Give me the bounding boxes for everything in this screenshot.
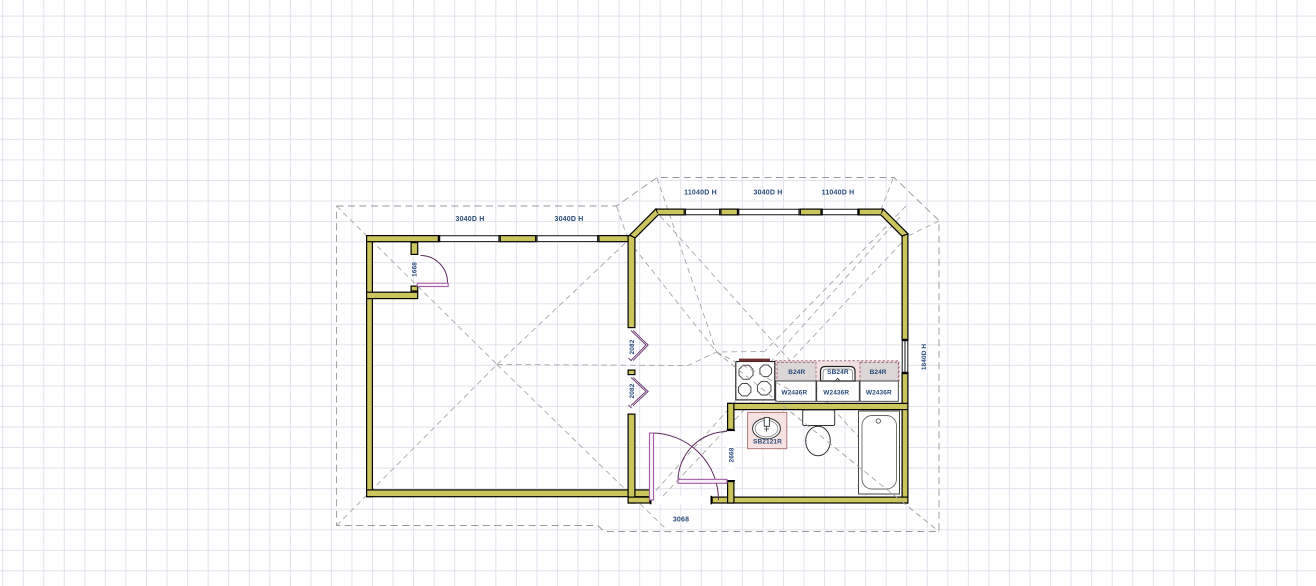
svg-text:11040D H: 11040D H — [822, 190, 855, 197]
svg-text:W2436R: W2436R — [823, 390, 849, 397]
svg-text:2668: 2668 — [729, 447, 736, 462]
svg-text:3068: 3068 — [673, 517, 689, 524]
svg-text:11040D H: 11040D H — [684, 190, 717, 197]
svg-text:B24R: B24R — [788, 369, 805, 376]
svg-text:3040D H: 3040D H — [455, 216, 484, 223]
svg-text:SB2121R: SB2121R — [753, 439, 782, 446]
svg-text:3040D H: 3040D H — [753, 190, 782, 197]
svg-text:SB24R: SB24R — [827, 369, 849, 376]
svg-text:W2436R: W2436R — [866, 390, 892, 397]
svg-text:2082: 2082 — [629, 383, 636, 398]
svg-text:2082: 2082 — [629, 339, 636, 354]
svg-text:B24R: B24R — [870, 369, 887, 376]
svg-text:1668: 1668 — [411, 262, 418, 277]
svg-text:W2436R: W2436R — [781, 390, 807, 397]
svg-text:3040D H: 3040D H — [554, 216, 583, 223]
svg-text:1840D H: 1840D H — [921, 344, 928, 371]
